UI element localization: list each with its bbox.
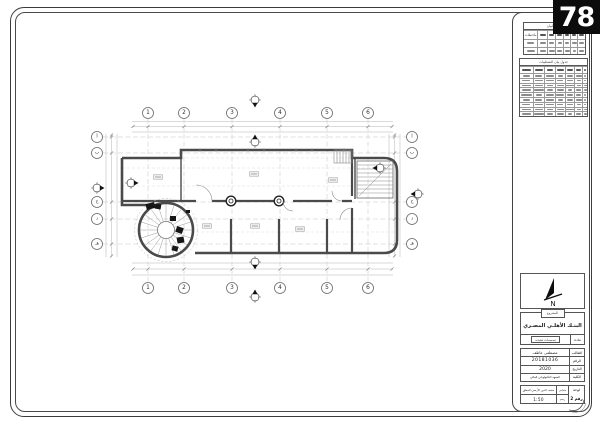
floor-plan-drawing: 112233445566أبجدهـأبجدهـ [30, 50, 510, 362]
date-value: 2020 [521, 366, 569, 373]
svg-text:5: 5 [325, 285, 329, 291]
svg-text:د: د [411, 217, 413, 222]
student-id: 20181036 [521, 357, 569, 364]
scale-value: 1:50 [521, 395, 556, 403]
finishes-schedule-table: جدول بيان التشطيبات [519, 58, 588, 117]
project-tag: المشروع [541, 309, 565, 318]
north-arrow-icon [544, 278, 562, 300]
project-name: البنـك الأهلـي المصـري [521, 323, 584, 329]
student-name: مصطفى عاطف [521, 349, 569, 356]
svg-text:5: 5 [325, 110, 329, 116]
info-row-student: مصطفى عاطف الطالب [521, 349, 584, 356]
svg-text:ب: ب [410, 151, 414, 156]
svg-text:ج: ج [411, 200, 414, 205]
info-row-number: 20181036 الرقم [521, 356, 584, 364]
number-label: الرقم [569, 357, 584, 364]
svg-text:ب: ب [95, 151, 99, 156]
page-number-box: 78 [553, 0, 600, 34]
north-label: N [550, 300, 555, 308]
svg-text:هـ: هـ [409, 242, 414, 247]
north-arrow-box: N [520, 273, 585, 309]
page-number: 78 [559, 4, 595, 31]
scale-label: مقياس [557, 386, 568, 395]
info-row-date: 2020 التاريخ [521, 365, 584, 373]
subject-strip: تصميمات تنفيذية مادة [521, 334, 584, 344]
svg-text:3: 3 [230, 110, 234, 116]
svg-text:3: 3 [230, 285, 234, 291]
student-info-table: مصطفى عاطف الطالب 20181036 الرقم 2020 ال… [520, 348, 585, 382]
drawing-title: سقف الدور الأرضي المعلق [521, 386, 556, 395]
walls [122, 150, 397, 257]
svg-text:4: 4 [278, 285, 282, 291]
svg-text:2: 2 [182, 110, 186, 116]
spiral-staircase [135, 199, 198, 262]
svg-text:4: 4 [278, 110, 282, 116]
svg-text:1: 1 [146, 285, 150, 291]
svg-text:ج: ج [96, 200, 99, 205]
svg-text:هـ: هـ [94, 242, 99, 247]
college-label: الكلية [569, 374, 584, 381]
corner-curl-icon [566, 396, 594, 416]
svg-text:6: 6 [366, 110, 370, 116]
subject-label: مادة [570, 335, 584, 344]
student-label: الطالب [569, 349, 584, 356]
sheet-label: لوحة [569, 386, 584, 395]
finishes-schedule-title: جدول بيان التشطيبات [520, 59, 587, 66]
drawing-sheet-page: { "page_number": "78", "plan": { "grid_c… [0, 0, 600, 424]
title-block-panel: جدول البيان ملاحظات جدول بيان التشطيبات … [512, 12, 590, 412]
svg-text:1: 1 [146, 110, 150, 116]
svg-text:2: 2 [182, 285, 186, 291]
subject-value: تصميمات تنفيذية [531, 336, 560, 343]
project-box: المشروع البنـك الأهلـي المصـري تصميمات ت… [520, 312, 585, 345]
dimension-ticks [110, 125, 396, 271]
info-row-college: المعهد التكنولوجي العالي الكلية [521, 373, 584, 381]
section-markers [91, 94, 424, 303]
college-value: المعهد التكنولوجي العالي [521, 374, 569, 381]
svg-text:6: 6 [366, 285, 370, 291]
date-label: التاريخ [569, 366, 584, 373]
svg-text:د: د [96, 217, 98, 222]
